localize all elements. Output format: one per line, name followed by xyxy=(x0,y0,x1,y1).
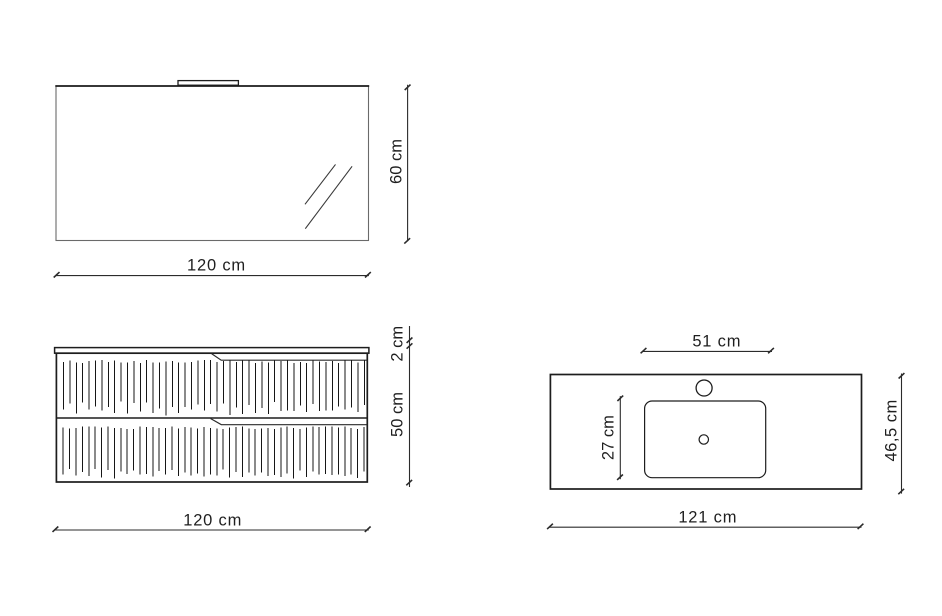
svg-text:120 cm: 120 cm xyxy=(183,512,242,530)
svg-text:121 cm: 121 cm xyxy=(678,508,737,526)
svg-text:27 cm: 27 cm xyxy=(600,415,618,460)
svg-text:51 cm: 51 cm xyxy=(692,332,741,350)
svg-text:50 cm: 50 cm xyxy=(388,392,406,437)
svg-text:46,5 cm: 46,5 cm xyxy=(882,399,900,461)
svg-text:120 cm: 120 cm xyxy=(187,256,246,274)
svg-text:2 cm: 2 cm xyxy=(388,326,406,362)
svg-text:60 cm: 60 cm xyxy=(387,139,405,184)
